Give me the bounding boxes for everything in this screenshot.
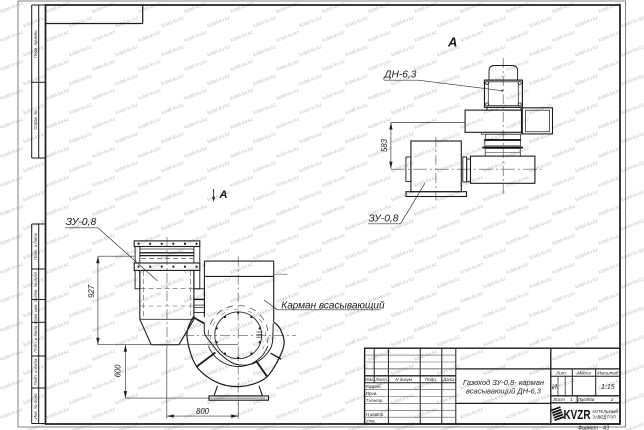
svg-text:Лист: Лист [552,397,565,402]
svg-text:всасывающий ДН-6,3: всасывающий ДН-6,3 [466,386,542,395]
svg-text:Изм.: Изм. [365,377,374,382]
svg-text:Справ. №: Справ. № [33,110,38,130]
svg-text:1: 1 [570,397,573,402]
svg-text:KVZR: KVZR [564,407,591,422]
svg-text:А3: А3 [602,425,609,430]
svg-text:2: 2 [610,397,614,402]
svg-text:Взам. инв. №: Взам. инв. № [33,297,38,324]
svg-text:Подп. и дата: Подп. и дата [33,325,38,353]
svg-text:Разраб.: Разраб. [366,384,382,389]
svg-text:927: 927 [87,284,96,298]
svg-text:ЗУ-0,8: ЗУ-0,8 [66,217,97,228]
svg-text:Подп. и дата: Подп. и дата [33,232,38,260]
svg-text:583: 583 [380,138,389,152]
svg-text:Лит.: Лит. [555,371,567,376]
svg-text:Пров.: Пров. [366,391,378,396]
svg-text:800: 800 [196,407,210,416]
svg-text:1:15: 1:15 [601,384,615,391]
svg-text:Н.контр.: Н.контр. [366,412,385,417]
svg-text:A: A [447,35,457,50]
svg-text:Формат: Формат [578,425,598,430]
svg-text:Подп. и дата: Подп. и дата [33,358,38,386]
svg-text:Утв.: Утв. [366,419,376,424]
svg-text:ДН-6,3: ДН-6,3 [383,70,416,81]
svg-text:Лист: Лист [375,377,388,382]
svg-text:Подп.: Подп. [425,377,437,382]
svg-text:Т.контр.: Т.контр. [366,398,384,403]
svg-text:Инв. № подл.: Инв. № подл. [33,392,38,419]
svg-text:A: A [219,189,228,201]
svg-text:КОТЕЛЬНЫЙ: КОТЕЛЬНЫЙ [593,409,619,414]
svg-text:Дата: Дата [442,377,455,382]
svg-text:ЗАВОД РЭП: ЗАВОД РЭП [593,415,616,420]
svg-text:Листов: Листов [577,397,595,402]
svg-text:600: 600 [114,364,123,378]
svg-text:Инв. № дубл.: Инв. № дубл. [33,271,38,297]
svg-text:ЗУ-0,8: ЗУ-0,8 [369,214,399,225]
svg-text:Перв. примен.: Перв. примен. [33,29,38,58]
svg-text:Масштаб: Масштаб [597,371,619,376]
svg-text:Масса: Масса [577,371,591,376]
svg-text:N докум.: N докум. [395,377,413,382]
